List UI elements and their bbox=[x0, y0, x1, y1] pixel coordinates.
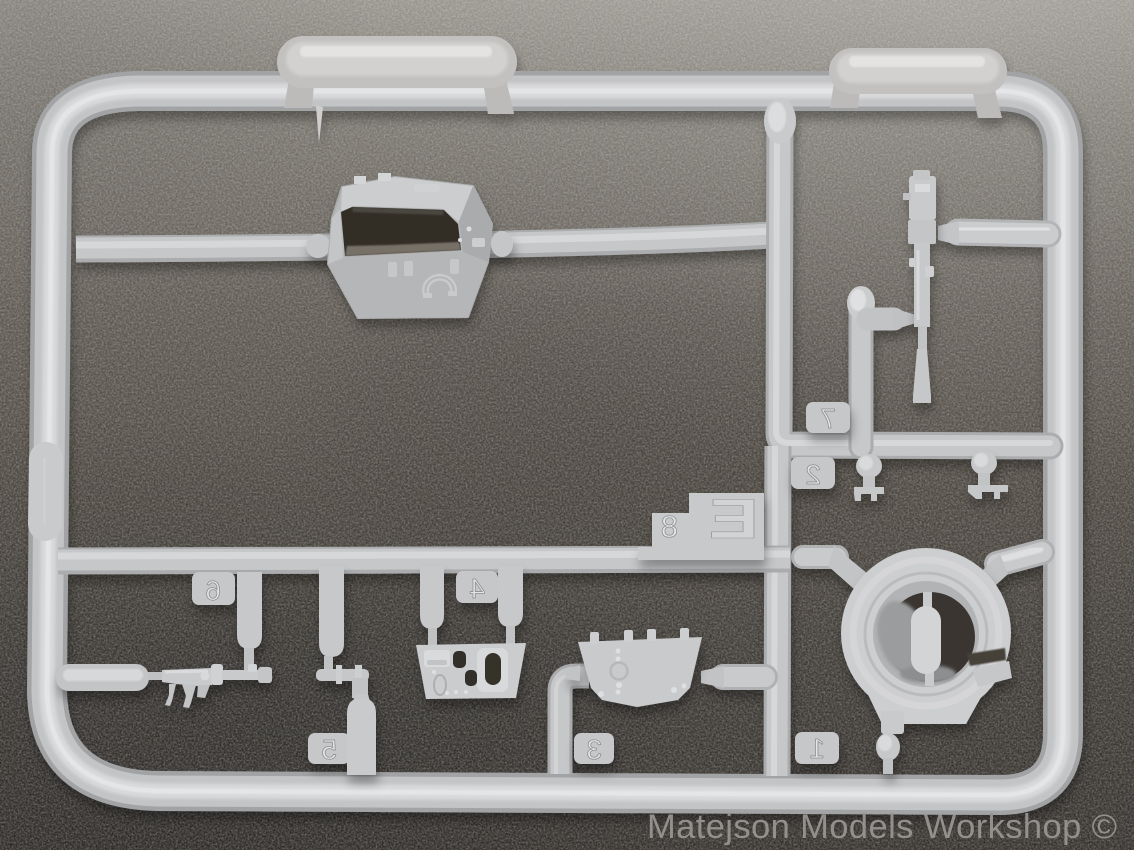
svg-text:4: 4 bbox=[469, 573, 485, 604]
svg-text:E: E bbox=[709, 488, 759, 550]
svg-text:Matejson Models Workshop ©: Matejson Models Workshop © bbox=[647, 808, 1117, 846]
svg-text:6: 6 bbox=[205, 575, 221, 606]
svg-text:8: 8 bbox=[661, 509, 678, 544]
svg-text:5: 5 bbox=[321, 734, 337, 765]
svg-text:1: 1 bbox=[809, 733, 825, 764]
svg-text:7: 7 bbox=[820, 403, 836, 434]
svg-text:3: 3 bbox=[586, 734, 602, 765]
svg-text:2: 2 bbox=[805, 459, 821, 490]
